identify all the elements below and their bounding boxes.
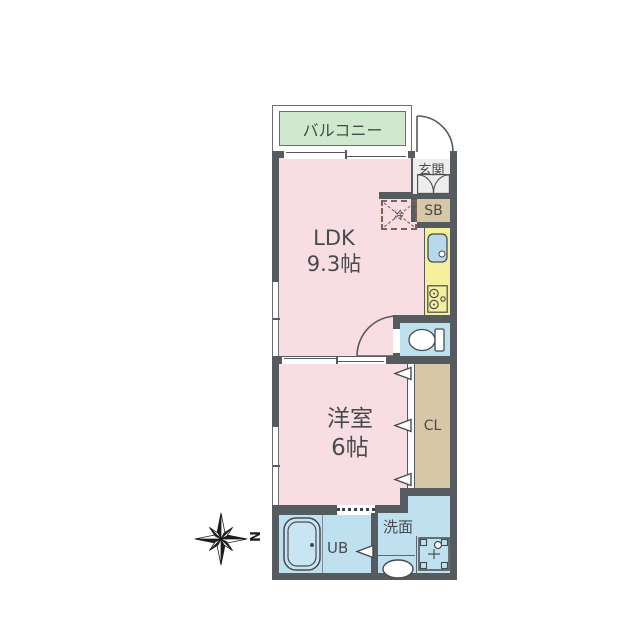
ldk-size-label: 9.3帖	[289, 251, 379, 277]
washroom-counter-line	[378, 555, 415, 556]
ldk-label: LDK	[289, 225, 379, 251]
window-tick	[345, 150, 347, 159]
compass-rose-icon	[192, 510, 250, 568]
refrigerator-space: 冷	[381, 200, 417, 230]
folding-door-marker-icon	[392, 418, 412, 433]
balcony-label: バルコニー	[303, 117, 383, 141]
unit-bath-label: UB	[327, 539, 348, 557]
washer-divider-line	[416, 536, 417, 573]
stove-icon	[427, 285, 448, 313]
window-tick	[273, 318, 280, 320]
window-panel	[346, 156, 406, 157]
refrigerator-label: 冷	[383, 202, 415, 228]
balcony-window	[284, 150, 408, 159]
western-room-size-label: 6帖	[305, 434, 395, 463]
wall-above-fridge	[379, 192, 411, 199]
floor-plan: バルコニー LDK 9.3帖 玄関 SB 冷	[0, 0, 640, 640]
folding-door-marker-icon	[392, 472, 412, 487]
kitchen-counter	[424, 228, 450, 317]
sliding-door-tick	[336, 357, 338, 364]
washroom: 洗面	[378, 513, 450, 573]
window	[272, 282, 279, 356]
bath-door-marker-icon	[354, 544, 374, 559]
ldk-label-group: LDK 9.3帖	[289, 225, 379, 277]
washroom-upper	[408, 496, 450, 513]
shoe-cabinet-icon	[417, 174, 450, 194]
toilet-door-swing-arc	[350, 312, 402, 360]
bath-module-line	[322, 515, 323, 573]
sliding-door-panel	[337, 361, 384, 362]
western-room-label: 洋室	[305, 405, 395, 434]
western-room-label-group: 洋室 6帖	[305, 405, 395, 463]
closet-room: CL	[415, 364, 450, 488]
sliding-door-opening	[282, 357, 386, 364]
window	[272, 427, 279, 505]
toilet-room	[400, 323, 450, 356]
compass-north-label: N	[246, 531, 261, 542]
balcony-room: バルコニー	[279, 111, 406, 146]
window-panel	[286, 152, 346, 153]
washing-machine-icon	[418, 537, 450, 571]
sliding-door-panel	[284, 358, 336, 359]
dotted-door-opening	[337, 505, 375, 515]
dotted-door-line	[337, 508, 375, 511]
bathtub-icon	[283, 517, 321, 571]
washroom-label: 洗面	[383, 516, 413, 537]
toilet-icon	[406, 327, 446, 353]
shoe-box-label: SB	[424, 203, 443, 219]
folding-door-marker-icon	[392, 366, 412, 381]
shoe-box: SB	[417, 199, 450, 222]
kitchen-sink-icon	[427, 233, 448, 263]
basin-icon	[381, 558, 415, 580]
entrance-door-swing-arc	[410, 108, 458, 156]
window-tick	[273, 465, 280, 467]
closet-label: CL	[424, 418, 442, 434]
